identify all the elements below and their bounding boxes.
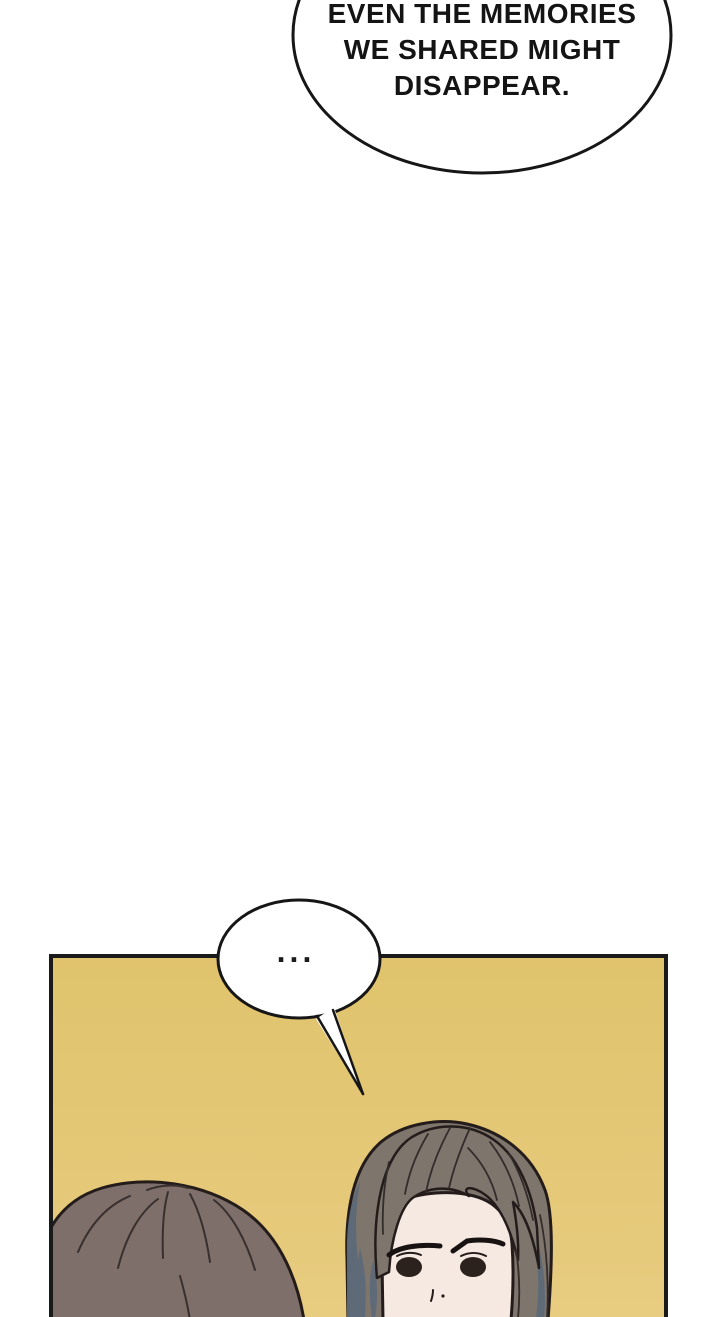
dialogue-line: EVEN THE MEMORIES — [292, 0, 672, 32]
comic-page: ... EVEN THE MEMORIES WE SHARED MIGHT DI… — [0, 0, 720, 1317]
man-character — [347, 1122, 552, 1317]
top-bubble-dialogue: EVEN THE MEMORIES WE SHARED MIGHT DISAPP… — [292, 0, 672, 104]
dialogue-line: DISAPPEAR. — [292, 68, 672, 104]
man-right-eye — [460, 1257, 486, 1277]
man-left-eye — [396, 1257, 422, 1277]
ellipsis-text: ... — [277, 933, 316, 969]
comic-artwork: ... — [0, 0, 720, 1317]
dialogue-line: WE SHARED MIGHT — [292, 32, 672, 68]
